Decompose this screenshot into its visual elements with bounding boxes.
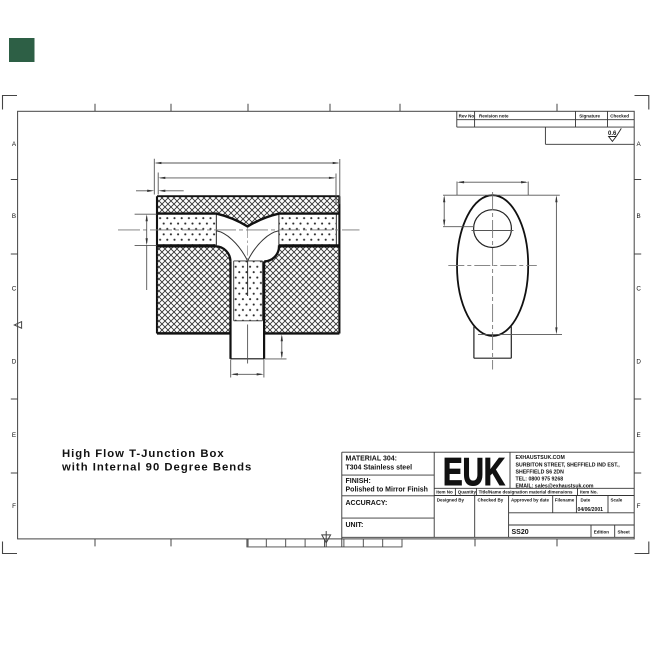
svg-text:UNIT:: UNIT: [346, 522, 364, 529]
svg-text:High Flow T-Junction Box: High Flow T-Junction Box [62, 448, 225, 460]
svg-text:C: C [636, 286, 641, 293]
svg-text:E: E [636, 432, 640, 439]
svg-text:Designed By: Designed By [437, 498, 465, 503]
svg-text:04/06/2001: 04/06/2001 [578, 507, 604, 513]
svg-text:B: B [636, 213, 640, 220]
svg-text:F: F [12, 503, 16, 510]
svg-text:Polished to Mirror Finish: Polished to Mirror Finish [346, 487, 428, 494]
svg-text:Revision note: Revision note [479, 114, 509, 119]
svg-text:EXHAUSTSUK.COM: EXHAUSTSUK.COM [516, 455, 565, 461]
svg-text:Date: Date [581, 498, 591, 503]
svg-text:with Internal 90 Degree Bends: with Internal 90 Degree Bends [61, 462, 252, 474]
svg-text:C: C [12, 286, 17, 293]
svg-text:E: E [12, 432, 16, 439]
svg-text:Checked: Checked [610, 114, 629, 119]
svg-text:SURBITON STREET, SHEFFIELD IND: SURBITON STREET, SHEFFIELD IND EST., [516, 462, 621, 468]
svg-text:Filename: Filename [555, 498, 575, 503]
svg-text:B: B [12, 213, 16, 220]
svg-text:Quantity: Quantity [458, 490, 477, 495]
svg-text:TEL: 0800 975 9268: TEL: 0800 975 9268 [516, 477, 564, 483]
svg-text:Edition: Edition [594, 530, 609, 535]
svg-text:F: F [637, 503, 641, 510]
svg-text:SS20: SS20 [512, 529, 529, 536]
svg-text:Item No.: Item No. [580, 490, 598, 495]
svg-text:Title/Name designation materia: Title/Name designation material dimensio… [479, 490, 573, 495]
svg-text:D: D [12, 359, 17, 366]
svg-text:T304 Stainless steel: T304 Stainless steel [346, 465, 413, 472]
svg-text:EUK: EUK [443, 451, 505, 494]
svg-text:Approved by date: Approved by date [511, 498, 550, 503]
svg-text:MATERIAL 304:: MATERIAL 304: [346, 456, 397, 463]
svg-text:Rev No: Rev No [459, 113, 475, 118]
svg-text:Scale: Scale [611, 498, 623, 503]
svg-text:Signature: Signature [579, 114, 600, 119]
svg-text:Checked By: Checked By [478, 498, 504, 503]
svg-text:Sheet: Sheet [618, 530, 631, 535]
svg-text:SHEFFIELD S6 2DN: SHEFFIELD S6 2DN [516, 469, 565, 475]
svg-text:D: D [636, 359, 641, 366]
svg-text:ACCURACY:: ACCURACY: [346, 500, 388, 507]
svg-text:Item No: Item No [436, 490, 453, 495]
svg-text:FINISH:: FINISH: [346, 478, 371, 485]
